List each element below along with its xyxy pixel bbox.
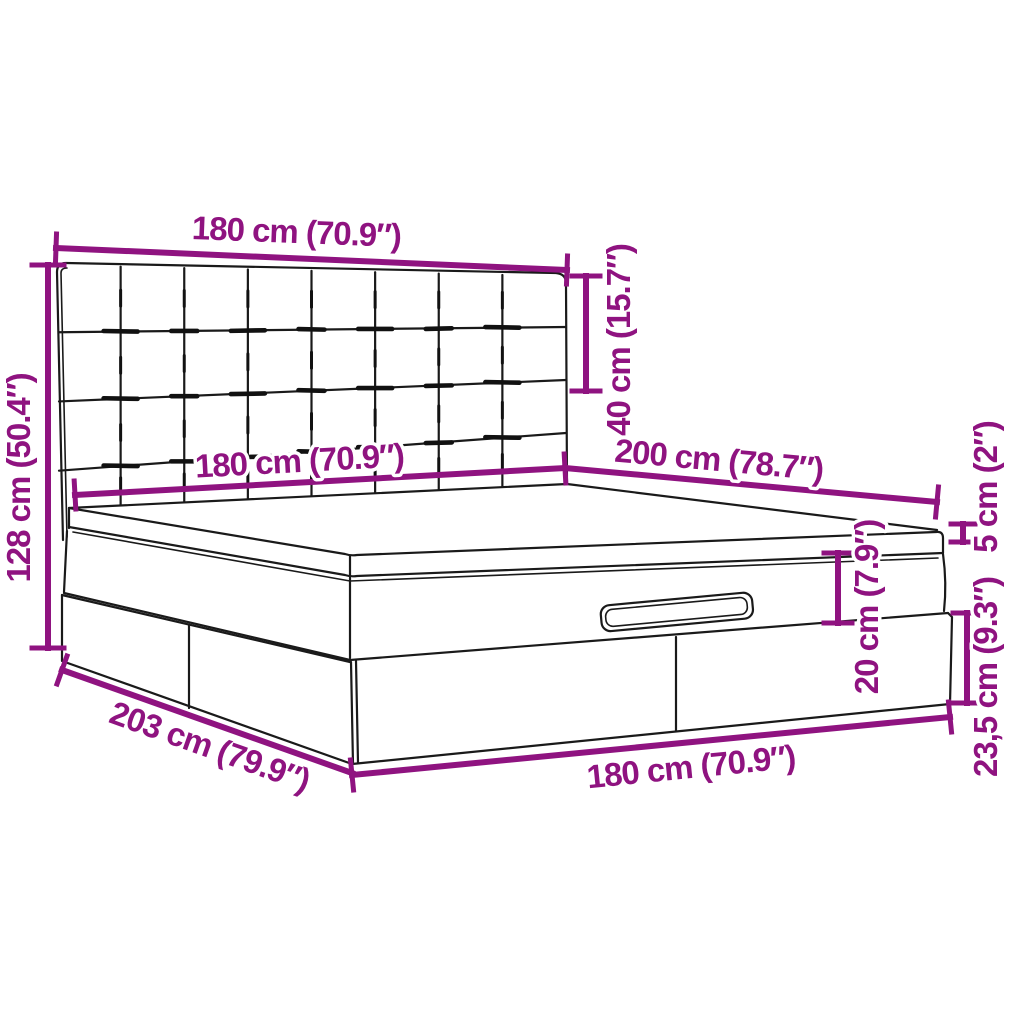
dim-storage-base-height-label: 23,5 cm (9.3″)	[967, 577, 1004, 777]
headboard-grid-line	[104, 465, 138, 466]
upper-frame	[64, 531, 948, 660]
headboard-grid-line	[426, 442, 452, 443]
dim-total-height-label: 128 cm (50.4″)	[0, 373, 37, 582]
headboard-grid-line	[426, 385, 452, 386]
lift-handle	[600, 592, 754, 632]
base-top-left-edge	[62, 595, 350, 662]
frame-left-edge	[64, 531, 67, 592]
handle-inner	[605, 597, 748, 627]
base-near-corner-edge	[351, 661, 358, 764]
headboard-grid-line	[104, 398, 138, 399]
headboard-grid-line	[485, 382, 519, 383]
bed-illustration	[57, 263, 952, 764]
headboard-grid-line	[231, 393, 265, 394]
headboard-grid-line	[299, 329, 325, 330]
dim-headboard-height-label: 40 cm (15.7″)	[600, 244, 637, 436]
dim-line-headboard-width	[56, 248, 567, 270]
headboard-grid-line	[299, 390, 325, 391]
dim-topper-thickness-label: 5 cm (2″)	[967, 421, 1004, 553]
dim-ticks-mattress-length	[936, 487, 939, 517]
bed-dimension-diagram: 180 cm (70.9″) 40 cm (15.7″) 128 cm (50.…	[0, 0, 1024, 1024]
diagram-canvas: 180 cm (70.9″) 40 cm (15.7″) 128 cm (50.…	[0, 0, 1024, 1024]
headboard-grid-line	[485, 437, 519, 438]
headboard-grid-line	[426, 328, 452, 329]
dim-upper-frame-height-label: 20 cm (7.9″)	[848, 520, 885, 694]
dim-headboard-width-label: 180 cm (70.9″)	[191, 209, 401, 254]
headboard-grid-line	[104, 331, 138, 332]
mattress-top-surface	[69, 484, 943, 555]
headboard-grid-line	[485, 327, 519, 328]
headboard-grid-line	[231, 330, 265, 331]
frame-right-edge	[943, 554, 945, 611]
